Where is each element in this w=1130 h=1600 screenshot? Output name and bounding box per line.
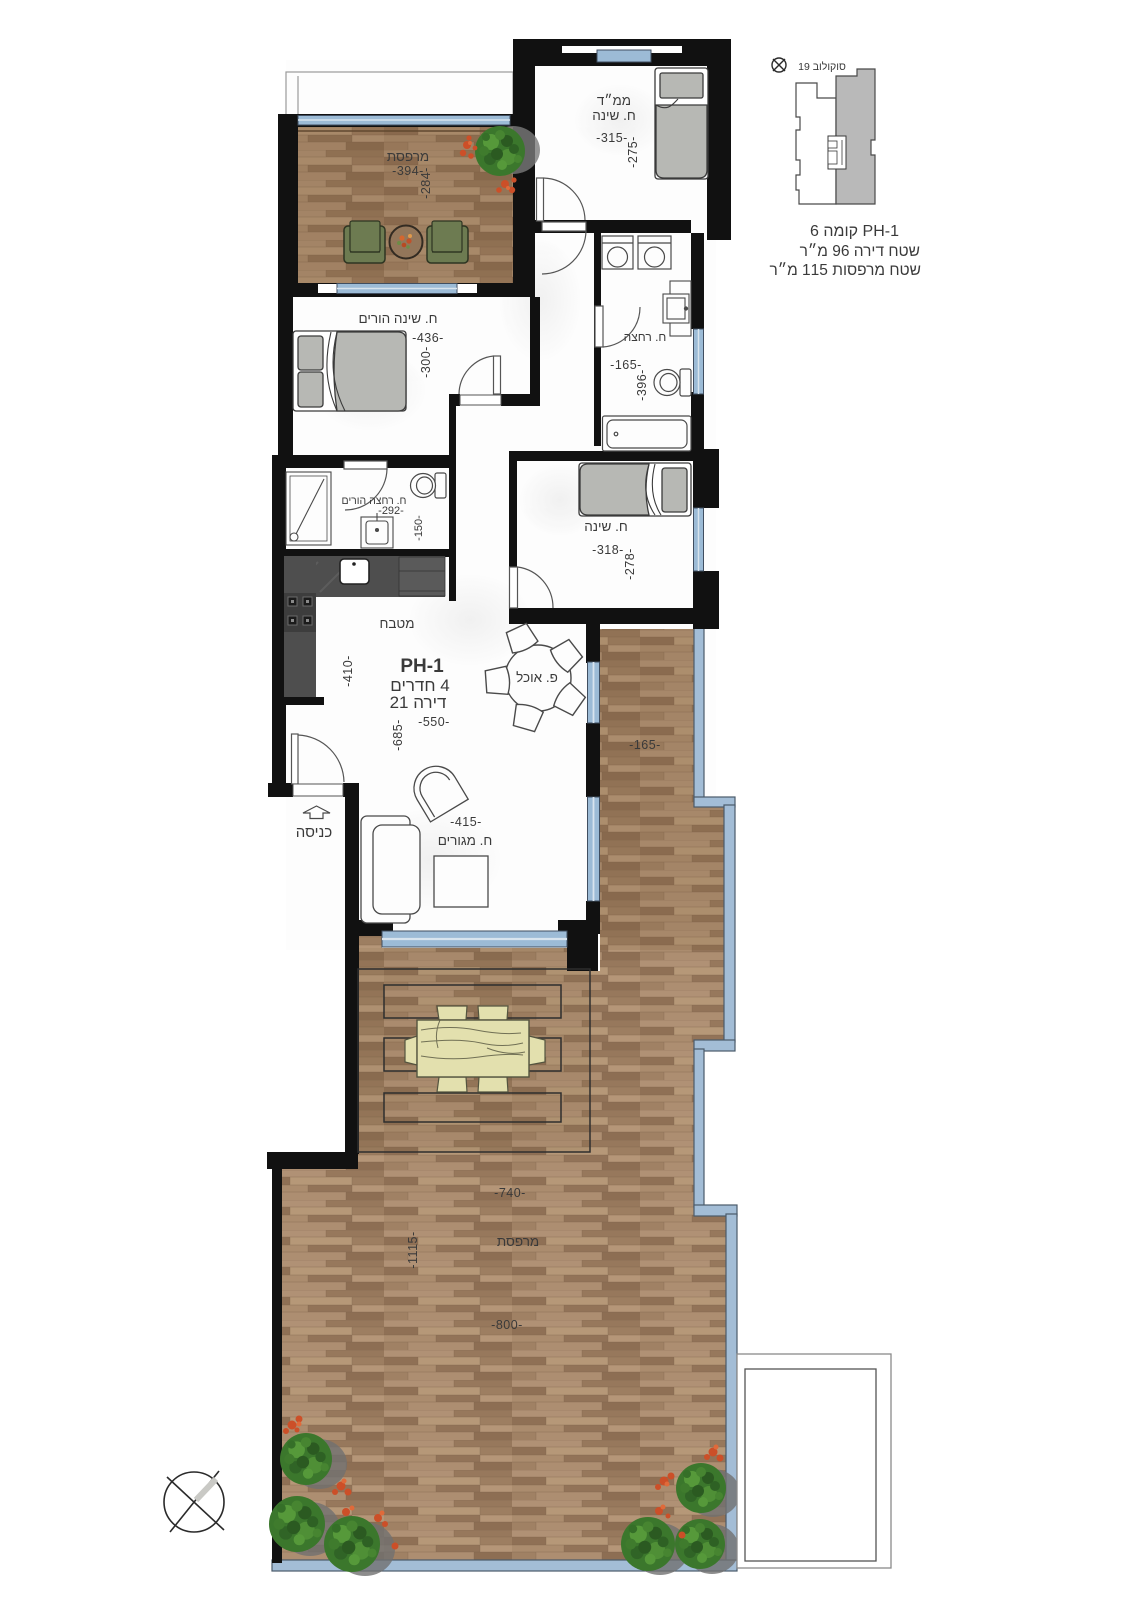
svg-text:-800-: -800-: [491, 1318, 523, 1332]
svg-text:PH-1: PH-1: [400, 656, 444, 677]
svg-text:-284-: -284-: [419, 167, 433, 199]
svg-text:מטבח: מטבח: [379, 616, 414, 631]
svg-text:ממ״ד: ממ״ד: [597, 93, 631, 108]
svg-text:-300-: -300-: [419, 346, 433, 378]
svg-text:‫PH-1 קומה 6‬: ‫PH-1 קומה 6‬: [810, 223, 899, 240]
svg-text:‫שטח מרפסות 115 מ״ר‬: ‫שטח מרפסות 115 מ״ר‬: [769, 262, 921, 279]
svg-text:-292-: -292-: [378, 505, 404, 517]
svg-text:-685-: -685-: [391, 719, 405, 751]
svg-text:ח. מגורים: ח. מגורים: [438, 833, 492, 848]
svg-text:-150-: -150-: [413, 515, 425, 541]
svg-text:ח. רחצה: ח. רחצה: [624, 330, 667, 344]
svg-text:-1115-: -1115-: [406, 1231, 420, 1268]
svg-text:ח. שינה הורים: ח. שינה הורים: [359, 311, 438, 326]
svg-text:-318-: -318-: [592, 543, 624, 557]
svg-text:-165-: -165-: [629, 738, 661, 752]
svg-text:‫סוקולוב 19‬: ‫סוקולוב 19‬: [798, 61, 846, 73]
svg-text:ח. שינה: ח. שינה: [592, 108, 636, 123]
svg-text:‫שטח דירה 96 מ״ר‬: ‫שטח דירה 96 מ״ר‬: [800, 243, 920, 260]
svg-text:-396-: -396-: [635, 369, 649, 401]
svg-text:-410-: -410-: [341, 655, 355, 687]
svg-text:-550-: -550-: [418, 715, 450, 729]
svg-text:-315-: -315-: [596, 131, 628, 145]
svg-text:‫דירה 21‬: ‫דירה 21‬: [390, 693, 447, 712]
svg-text:-740-: -740-: [494, 1186, 526, 1200]
svg-text:-275-: -275-: [626, 136, 640, 168]
svg-text:-278-: -278-: [623, 548, 637, 580]
svg-text:פ. אוכל: פ. אוכל: [516, 670, 558, 685]
svg-text:מרפסת: מרפסת: [387, 149, 429, 164]
svg-text:ח. שינה: ח. שינה: [584, 519, 628, 534]
svg-text:-415-: -415-: [450, 815, 482, 829]
svg-text:-436-: -436-: [412, 331, 444, 345]
svg-text:כניסה: כניסה: [296, 824, 333, 841]
svg-text:מרפסת: מרפסת: [497, 1234, 539, 1249]
